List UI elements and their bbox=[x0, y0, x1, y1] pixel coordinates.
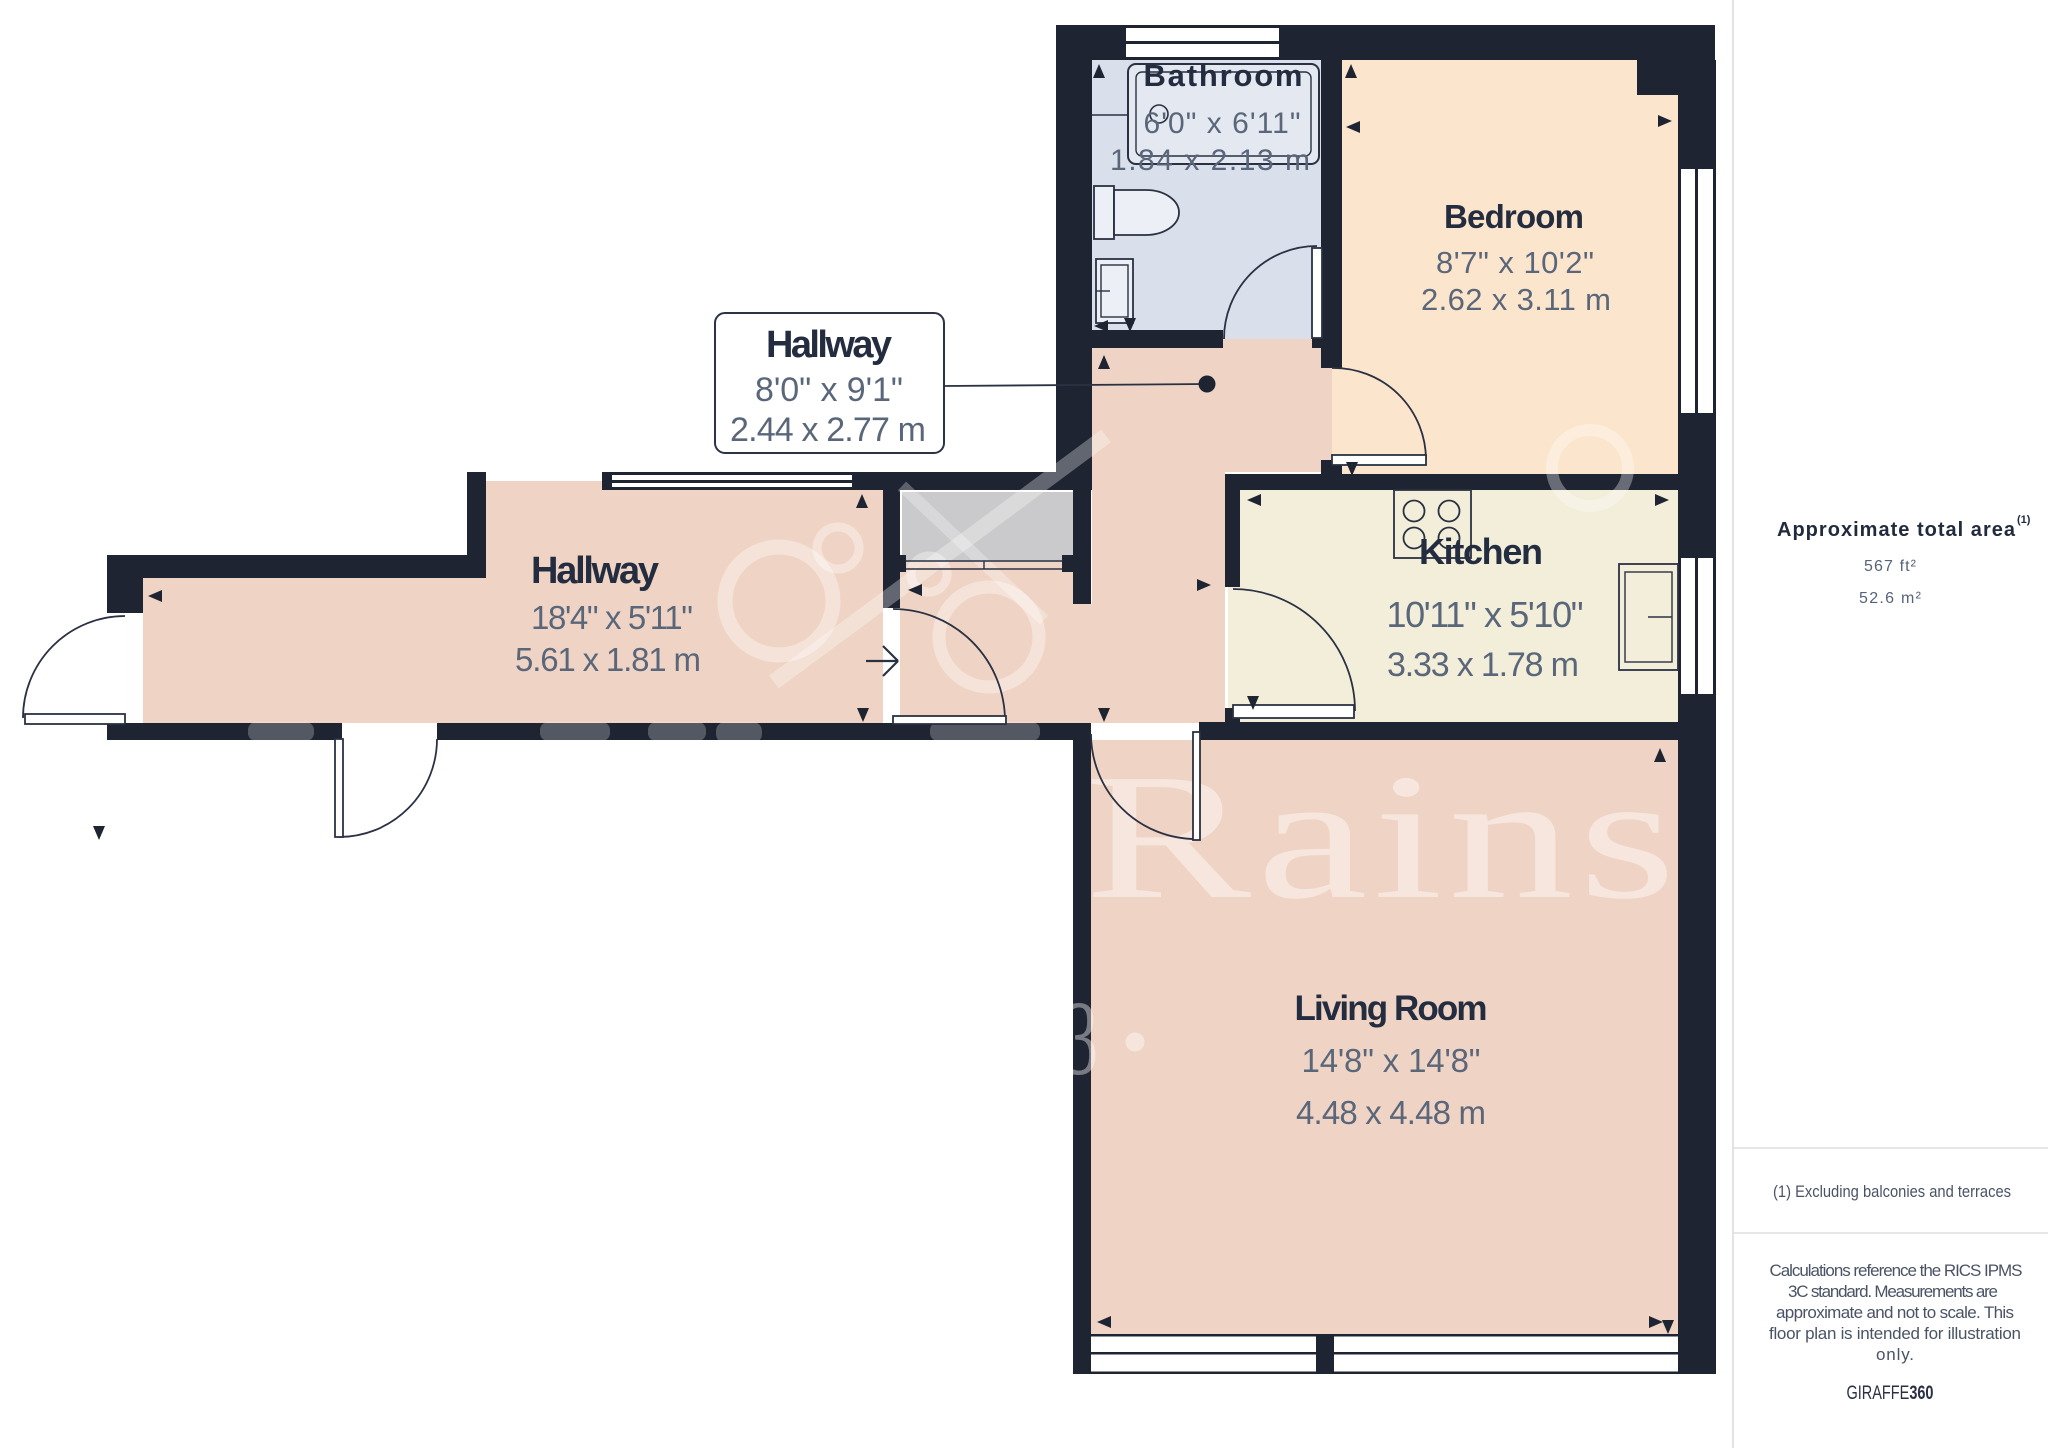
svg-text:5.61 x 1.81 m: 5.61 x 1.81 m bbox=[515, 641, 701, 678]
svg-text:Reeds Rains: Reeds Rains bbox=[378, 738, 1681, 937]
svg-text:Hallway: Hallway bbox=[531, 550, 659, 592]
svg-text:4.48 x 4.48 m: 4.48 x 4.48 m bbox=[1296, 1094, 1486, 1131]
svg-text:6'0" x 6'11": 6'0" x 6'11" bbox=[1144, 107, 1301, 140]
svg-text:only.: only. bbox=[1876, 1345, 1914, 1364]
svg-text:(1): (1) bbox=[2017, 514, 2031, 526]
svg-text:3C standard. Measurements are: 3C standard. Measurements are bbox=[1788, 1282, 1998, 1301]
svg-text:Bedroom: Bedroom bbox=[1444, 198, 1584, 235]
svg-text:GIRAFFE360: GIRAFFE360 bbox=[1847, 1383, 1934, 1404]
svg-text:8'0" x 9'1": 8'0" x 9'1" bbox=[755, 371, 903, 409]
svg-text:3.33 x 1.78 m: 3.33 x 1.78 m bbox=[1387, 646, 1579, 684]
svg-text:Calculations reference the RIC: Calculations reference the RICS IPMS bbox=[1770, 1261, 2023, 1280]
svg-text:8'7" x 10'2": 8'7" x 10'2" bbox=[1436, 245, 1594, 280]
svg-text:1.84 x 2.13 m: 1.84 x 2.13 m bbox=[1110, 144, 1310, 177]
svg-text:Bathroom: Bathroom bbox=[1144, 58, 1303, 93]
svg-text:18'4" x 5'11": 18'4" x 5'11" bbox=[531, 599, 693, 636]
svg-text:Hallway: Hallway bbox=[766, 324, 892, 366]
svg-text:Approximate total area: Approximate total area bbox=[1777, 519, 2016, 541]
svg-text:3: 3 bbox=[1064, 980, 1098, 1098]
svg-text:2.44 x 2.77 m: 2.44 x 2.77 m bbox=[730, 411, 926, 449]
svg-text:52.6 m²: 52.6 m² bbox=[1859, 590, 1922, 607]
svg-text:floor plan is intended for ill: floor plan is intended for illustration bbox=[1769, 1324, 2021, 1343]
svg-text:Kitchen: Kitchen bbox=[1419, 531, 1543, 572]
svg-text:14'8" x 14'8": 14'8" x 14'8" bbox=[1302, 1042, 1481, 1079]
svg-text:10'11" x 5'10": 10'11" x 5'10" bbox=[1387, 594, 1584, 635]
svg-text:2.62 x 3.11 m: 2.62 x 3.11 m bbox=[1421, 282, 1611, 317]
svg-text:(1) Excluding balconies and te: (1) Excluding balconies and terraces bbox=[1773, 1182, 2011, 1201]
svg-text:approximate and not to scale.: approximate and not to scale. This bbox=[1776, 1303, 2014, 1322]
svg-text:567 ft²: 567 ft² bbox=[1864, 558, 1917, 575]
svg-text:Living Room: Living Room bbox=[1295, 989, 1488, 1028]
